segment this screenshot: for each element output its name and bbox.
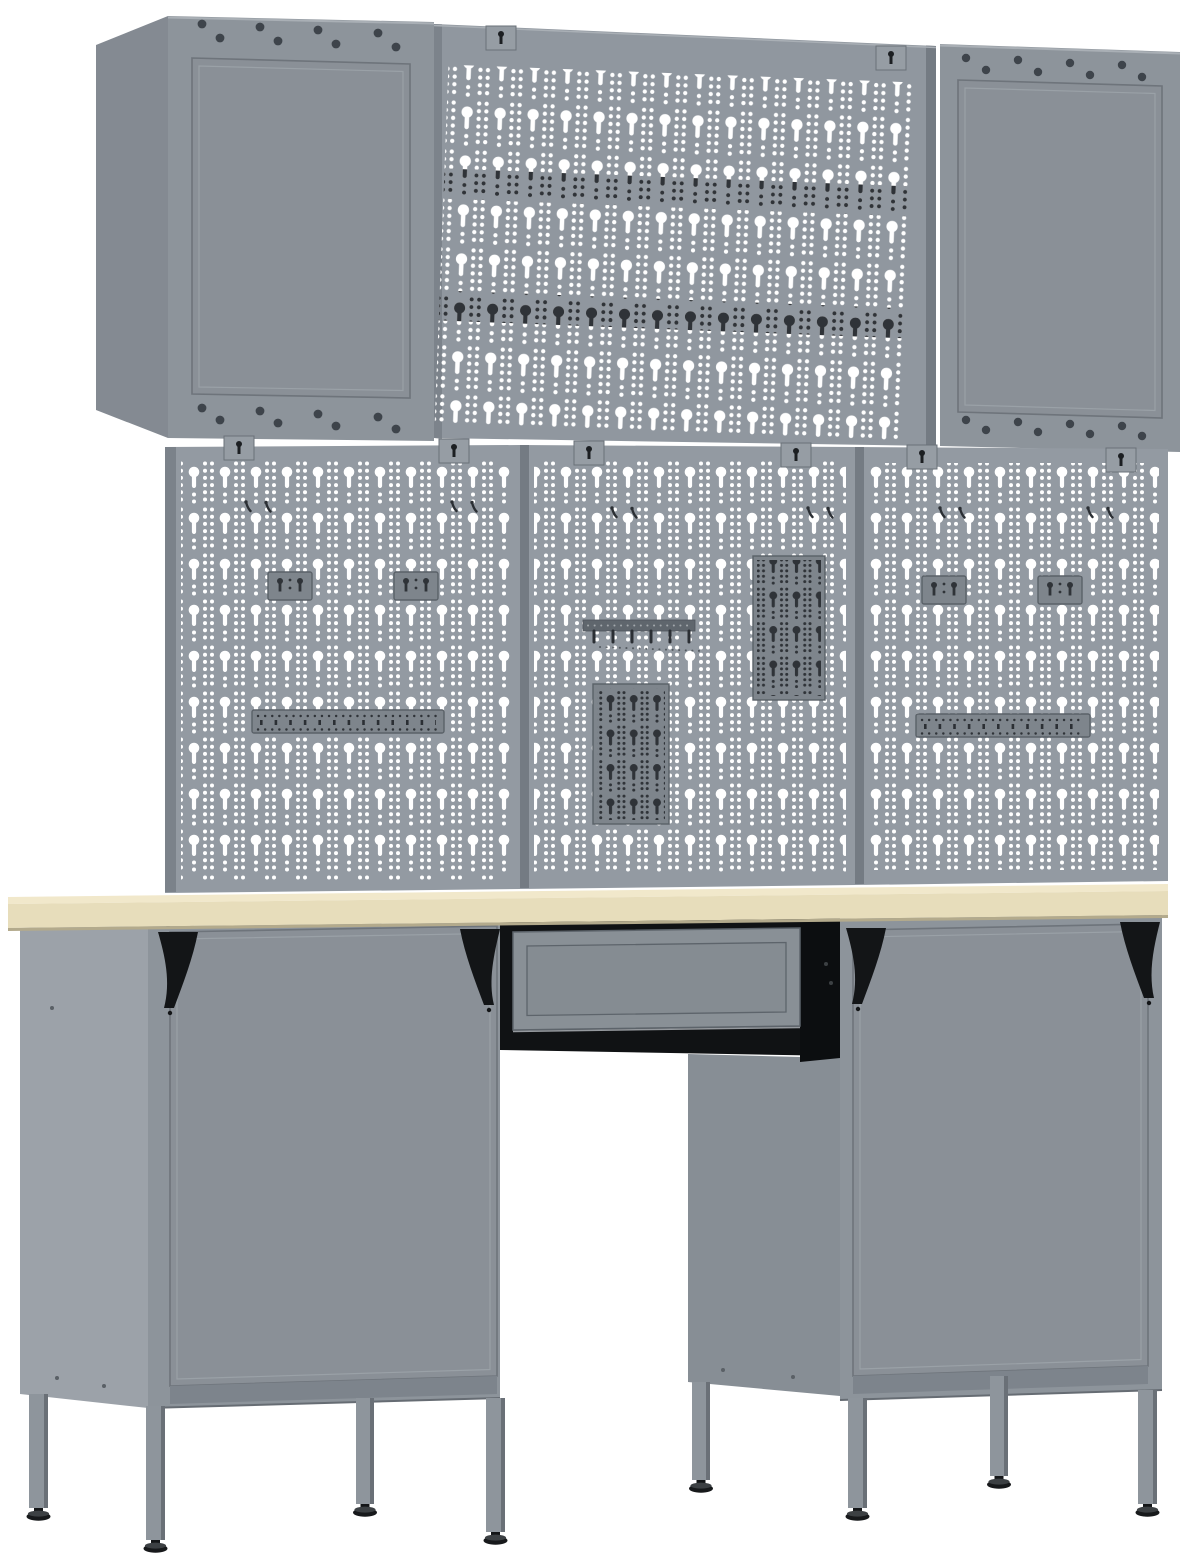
pegboard-mounting-tab xyxy=(907,445,937,469)
pegboard-seam xyxy=(855,447,864,884)
workbench-product-image xyxy=(0,0,1189,1560)
base-cabinet-left-door xyxy=(170,926,497,1386)
base-cabinet-right-side xyxy=(688,1054,840,1396)
wall-pegboard-right-seam xyxy=(926,46,936,447)
two-peg-hanger xyxy=(1038,576,1082,604)
wall-cabinet-left-door xyxy=(192,58,410,398)
adjustable-foot xyxy=(689,1480,713,1493)
base-row xyxy=(20,908,1162,1553)
pegboard-left-return-edge xyxy=(165,447,176,892)
wall-cabinet-left xyxy=(96,16,434,441)
wall-cabinet-right-door xyxy=(958,80,1162,418)
base-cabinet-left-legs xyxy=(27,1394,508,1553)
adjustable-foot xyxy=(484,1532,508,1545)
pegboard-panel-left xyxy=(165,436,520,893)
two-peg-hanger xyxy=(394,572,438,600)
base-cabinet-left-side xyxy=(20,922,148,1408)
adjustable-foot xyxy=(144,1540,168,1553)
drawer-front-panel xyxy=(527,943,786,1016)
adjustable-foot xyxy=(1136,1504,1160,1517)
tool-holder-strip xyxy=(252,710,444,733)
workbench-render xyxy=(0,0,1189,1560)
adjustable-foot xyxy=(353,1504,377,1517)
wall-units xyxy=(96,16,1180,452)
adjustable-foot xyxy=(27,1508,51,1521)
holder-plate-vertical xyxy=(593,684,669,824)
base-cabinet-left xyxy=(20,914,508,1553)
wall-cabinet-right xyxy=(940,44,1180,452)
pegboard-mounting-tab xyxy=(574,441,604,465)
holder-plate-tall xyxy=(753,556,825,700)
wall-cabinet-left-side xyxy=(96,16,168,438)
pegboard-panel-right xyxy=(855,445,1168,885)
tool-holder-strip xyxy=(916,714,1090,737)
pegboard-row xyxy=(165,436,1168,893)
drawer-module xyxy=(500,908,840,1062)
pegboard-mounting-tab xyxy=(1106,448,1136,472)
wall-panel-mounting-tab xyxy=(486,26,516,50)
drawer-housing-right xyxy=(800,908,840,1062)
two-peg-hanger xyxy=(922,576,966,604)
wall-pegboard-perforation xyxy=(435,65,914,441)
adjustable-foot xyxy=(987,1476,1011,1489)
adjustable-foot xyxy=(846,1508,870,1521)
two-peg-hanger xyxy=(268,572,312,600)
wall-panel-mounting-tab xyxy=(876,46,906,70)
wall-pegboard-panel xyxy=(434,24,936,446)
pegboard-seam xyxy=(520,445,529,888)
pegboard-mounting-tab xyxy=(224,436,254,460)
base-cabinet-right-door xyxy=(853,924,1148,1376)
pegboard-panel-center xyxy=(520,441,855,889)
pegboard-mounting-tab xyxy=(781,443,811,467)
pegboard-mounting-tab xyxy=(439,439,469,463)
